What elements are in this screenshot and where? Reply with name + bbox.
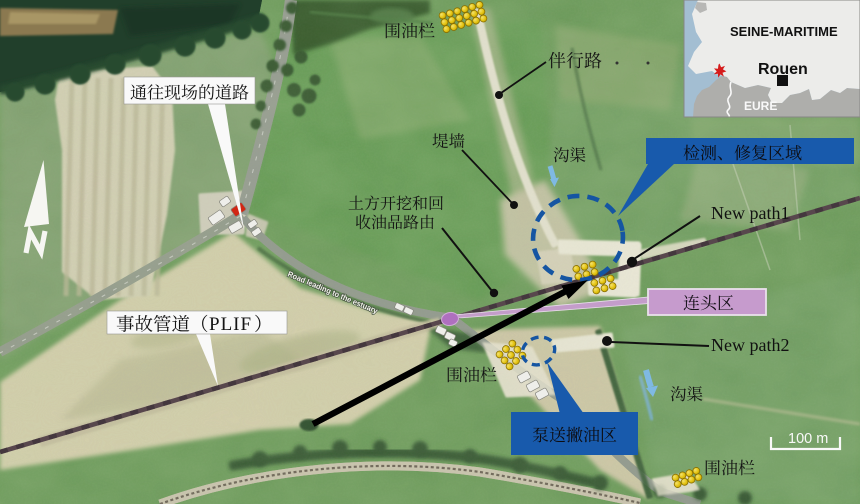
svg-text:PLIF: PLIF <box>209 314 252 335</box>
svg-text:100 m: 100 m <box>788 431 828 447</box>
svg-text:New path2: New path2 <box>711 335 789 355</box>
svg-text:EURE: EURE <box>744 99 777 113</box>
svg-text:Rouen: Rouen <box>758 61 808 78</box>
svg-text:New path1: New path1 <box>711 203 789 223</box>
svg-text:SEINE-MARITIME: SEINE-MARITIME <box>730 24 838 39</box>
